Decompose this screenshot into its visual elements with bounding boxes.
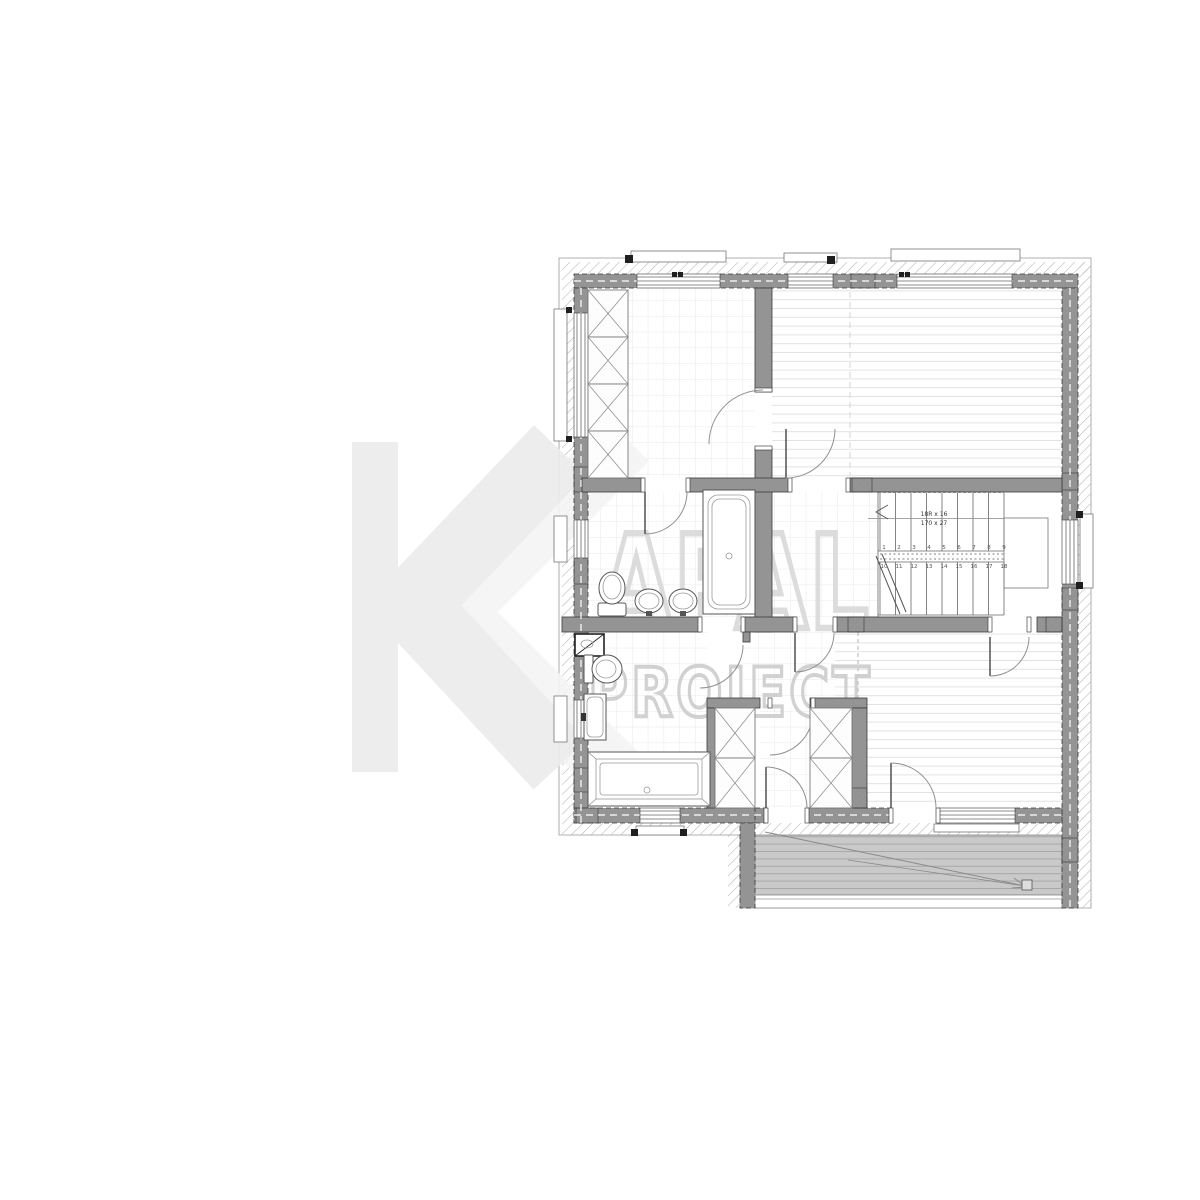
staircase: 18R x 16 170 x 27 123456789 101112131415… [868, 492, 1048, 617]
terrace-deck [755, 823, 1062, 908]
floor-plan-page: APAL PROJECT [0, 0, 1200, 1200]
stair-note-2: 170 x 27 [921, 520, 948, 527]
closet-right [810, 708, 852, 808]
tread-number: 3 [912, 545, 916, 551]
floor-plan-canvas: APAL PROJECT [0, 0, 1200, 1200]
terrace-side-wall [740, 823, 755, 908]
tread-number: 9 [1002, 545, 1006, 551]
closet-left [715, 708, 755, 808]
bathtub-vertical [703, 490, 755, 614]
tread-number: 18 [1001, 564, 1008, 570]
terrace-drain [1022, 880, 1032, 890]
bathtub-horizontal [588, 752, 710, 806]
floor-top-right-room [772, 288, 1062, 478]
tread-number: 17 [986, 564, 993, 570]
tread-number: 8 [987, 545, 991, 551]
tread-number: 12 [911, 564, 918, 570]
tread-number: 16 [971, 564, 978, 570]
tread-number: 11 [896, 564, 903, 570]
window-terrace [934, 808, 1019, 832]
tread-number: 6 [957, 545, 961, 551]
wardrobe-top-left [588, 290, 628, 478]
tread-number: 13 [926, 564, 933, 570]
tread-number: 5 [942, 545, 946, 551]
toilet-lower [584, 655, 622, 683]
tread-number: 2 [897, 545, 901, 551]
stair-landing [1004, 518, 1048, 588]
corner-sink [575, 634, 604, 656]
tread-number: 1 [882, 545, 886, 551]
tread-number: 4 [927, 545, 931, 551]
stair-tread-numbers-down: 101112131415161718 [881, 564, 1008, 570]
toilet-upper [598, 572, 626, 616]
vanity-sink [581, 694, 606, 740]
tread-number: 15 [956, 564, 963, 570]
stair-tread-numbers-up: 123456789 [882, 545, 1006, 551]
tread-number: 7 [972, 545, 976, 551]
window-right-stairs [1062, 511, 1093, 589]
tread-number: 14 [941, 564, 948, 570]
tread-number: 10 [881, 564, 888, 570]
stair-note-1: 18R x 16 [921, 511, 948, 518]
